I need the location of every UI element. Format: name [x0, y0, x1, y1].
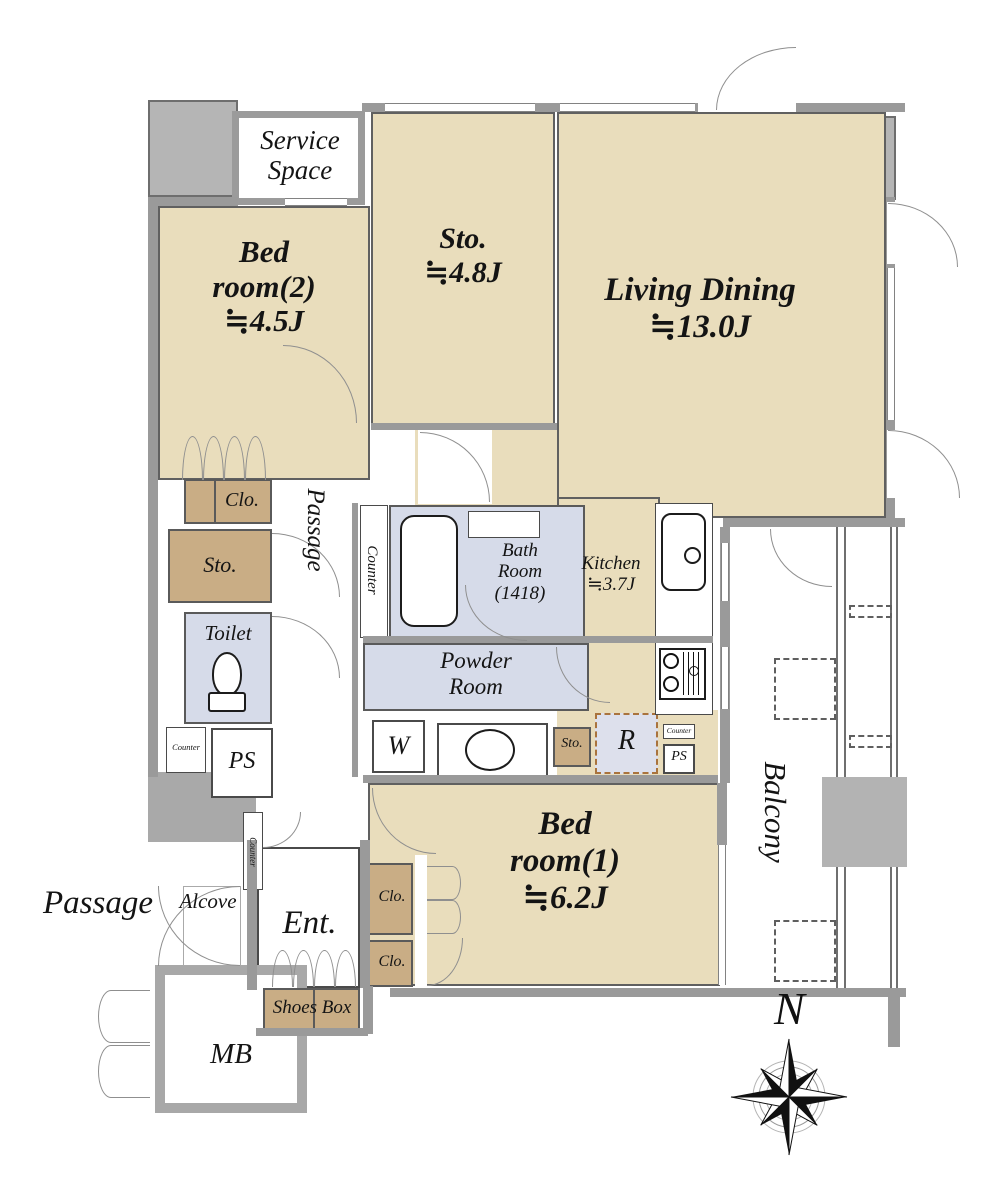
label-line: Living Dining — [545, 272, 855, 309]
meter-box-label: MB — [160, 1038, 302, 1070]
toilet-label: Toilet — [186, 622, 270, 646]
burner — [663, 653, 679, 669]
label-line: Room — [363, 674, 589, 700]
column-top-left — [148, 100, 238, 197]
label-line: Alcove — [179, 889, 236, 913]
storage-small-label: Sto. — [553, 736, 591, 752]
door-arc — [888, 203, 958, 267]
storage-left-label: Sto. — [170, 553, 270, 578]
closet-left-label: Clo. — [214, 489, 270, 511]
label-line: ≒4.5J — [164, 304, 364, 339]
ac-unit-space — [774, 920, 836, 982]
mb-door — [98, 1045, 150, 1098]
wall — [363, 775, 718, 783]
wall — [158, 197, 238, 206]
label-line: Clo. — [378, 953, 405, 970]
counter-entry-label: Counter — [213, 812, 293, 892]
label-line: Balcony — [758, 761, 793, 863]
burner — [663, 676, 679, 692]
label-line: room(2) — [164, 270, 364, 305]
label-line: ≒4.8J — [383, 256, 543, 290]
door-arc-balcony — [770, 529, 832, 587]
counter-kitchen-label: Counter — [663, 727, 695, 735]
toilet-bowl — [212, 652, 242, 696]
label-line: Counter — [248, 837, 258, 867]
wash-basin — [465, 729, 515, 771]
wall — [363, 636, 713, 643]
faucet — [684, 547, 701, 564]
toilet-tank — [208, 692, 246, 712]
label-line: Counter — [364, 545, 381, 594]
label-line: Toilet — [204, 621, 251, 645]
label-line: Counter — [667, 726, 692, 735]
label-line: W — [388, 731, 410, 760]
closet-bedroom1-bottom-label: Clo. — [371, 953, 413, 971]
label-line: Service — [240, 125, 360, 155]
service-space-label: Service Space — [240, 125, 360, 185]
compass-rose: N — [722, 982, 857, 1172]
counter-left-label: Counter — [166, 743, 206, 753]
powder-room-label: Powder Room — [363, 648, 589, 700]
balcony-label: Balcony — [695, 732, 855, 892]
label-line: Clo. — [378, 888, 405, 905]
window — [721, 543, 729, 601]
stove — [659, 648, 706, 700]
passage-exterior-label: Passage — [38, 885, 158, 922]
label-line: ≒6.2J — [420, 880, 710, 917]
ac-unit-space — [774, 658, 836, 720]
wall — [256, 1028, 368, 1036]
bath-counter — [468, 511, 540, 538]
wall — [148, 197, 158, 777]
label-line: Sto. — [561, 736, 582, 751]
counter-bath-label: Counter — [317, 515, 427, 625]
ps-kitchen-label: PS — [663, 749, 695, 765]
bedroom2-label: Bed room(2) ≒4.5J — [164, 235, 364, 339]
label-line: room(1) — [420, 843, 710, 880]
window — [887, 268, 895, 420]
window — [560, 103, 695, 112]
label-line: Sto. — [383, 222, 543, 256]
wall — [363, 986, 373, 1034]
label-line: R — [618, 725, 635, 756]
label-line: ≒13.0J — [545, 309, 855, 346]
grill-lines — [683, 652, 702, 695]
label-line: Clo. — [225, 489, 259, 511]
wall — [888, 995, 900, 1047]
closet-bedroom1-top-label: Clo. — [371, 888, 413, 906]
living-dining-label: Living Dining ≒13.0J — [545, 272, 855, 346]
entrance-label: Ent. — [262, 905, 357, 942]
storage-room-label: Sto. ≒4.8J — [383, 222, 543, 289]
wall — [360, 840, 370, 988]
label-line: ≒3.7J — [556, 574, 666, 595]
door-arc-toilet — [272, 616, 340, 678]
shoes-box-label: Shoes Box — [266, 997, 358, 1018]
ps-left-label: PS — [211, 748, 273, 775]
label-line: Ent. — [282, 905, 336, 941]
wall — [371, 423, 557, 430]
label-line: MB — [210, 1038, 252, 1070]
label-line: Powder — [363, 648, 589, 674]
door-arc — [716, 47, 796, 110]
label-line: Sto. — [203, 552, 237, 577]
mb-door — [98, 990, 150, 1043]
label-line: Bed — [420, 806, 710, 843]
label-line: PS — [671, 749, 687, 764]
window — [721, 647, 729, 709]
window — [385, 103, 535, 112]
label-line: PS — [229, 748, 256, 774]
label-line: Counter — [172, 742, 200, 752]
refrigerator-label: R — [595, 725, 658, 756]
rail-marker — [849, 735, 892, 748]
label-line: Kitchen — [556, 553, 666, 574]
kitchen-label: Kitchen ≒3.7J — [556, 553, 666, 596]
alcove-label: Alcove — [163, 890, 253, 914]
rail-marker — [849, 605, 892, 618]
label-line: Shoes Box — [273, 997, 352, 1018]
door-arc — [888, 430, 960, 498]
floor-plan: Service Space Bed room(2) ≒4.5J Sto. ≒4.… — [0, 0, 1003, 1200]
balcony-rail — [890, 527, 892, 988]
balcony-rail — [896, 527, 898, 995]
washer-label: W — [372, 731, 425, 760]
label-line: Bed — [164, 235, 364, 270]
label-line: Space — [240, 155, 360, 185]
north-label: N — [773, 983, 807, 1034]
label-line: Passage — [43, 885, 153, 921]
bedroom1-label: Bed room(1) ≒6.2J — [420, 806, 710, 917]
window — [285, 198, 347, 206]
wall — [723, 518, 905, 527]
